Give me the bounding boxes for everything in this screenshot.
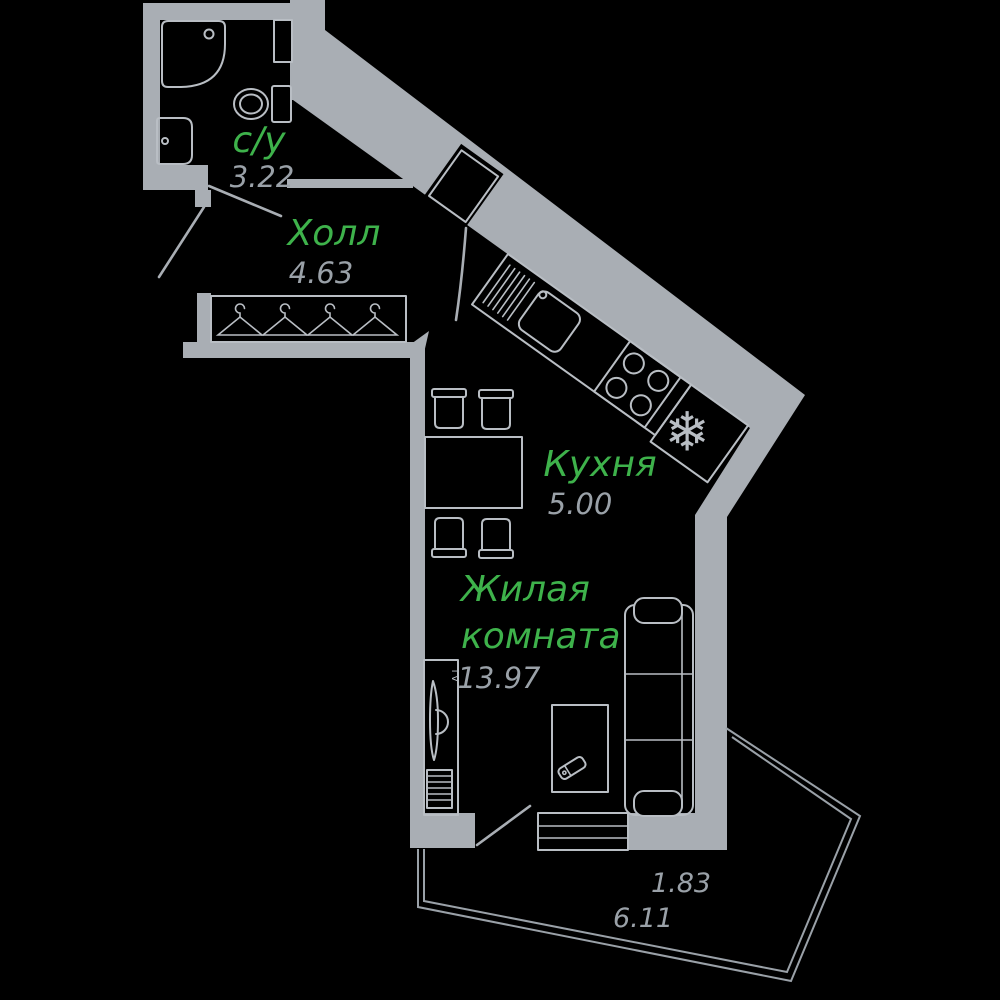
balcony-door-swing: [477, 806, 530, 845]
sofa-armrest: [634, 598, 682, 623]
wall-hall-bottom: [183, 342, 425, 358]
hanger-icon: [263, 304, 307, 335]
chair-icon: [432, 518, 466, 557]
window: [538, 813, 628, 850]
chair-icon: [479, 519, 513, 558]
chair-icon: [432, 389, 466, 428]
balcony: [418, 728, 860, 981]
radiator-icon: [427, 770, 452, 808]
sink-tap-icon: [162, 138, 168, 144]
sofa-armrest: [634, 791, 682, 816]
coffee-table: [552, 705, 608, 792]
wall-entry-stub: [195, 190, 211, 207]
toilet-tank-icon: [272, 86, 291, 122]
dining-table: [425, 437, 522, 508]
wall-bathroom-top: [143, 3, 292, 20]
dining-set: [425, 389, 522, 558]
room-area-living: 13.97: [457, 661, 541, 695]
room-name-bathroom: с/у: [232, 120, 286, 161]
room-area-kitchen: 5.00: [548, 487, 613, 521]
hangers: [218, 304, 397, 335]
snowflake-icon: ❄: [665, 401, 710, 464]
wall-diagonal-exterior: [290, 0, 805, 850]
tv-icon: [430, 681, 438, 760]
entrance-door-swing: [456, 228, 466, 320]
room-name-living-line2: комната: [461, 616, 621, 657]
room-name-living-line1: Жилая: [459, 569, 590, 610]
chair-icon: [479, 390, 513, 429]
room-area-bathroom: 3.22: [230, 160, 295, 194]
hanger-icon: [308, 304, 352, 335]
floorplan-page: ❄ TV: [0, 0, 1000, 1000]
toilet-bowl-inner: [240, 95, 262, 114]
duct-shaft-box: [274, 20, 292, 62]
hanger-icon: [218, 304, 262, 335]
floorplan-canvas: ❄ TV: [0, 0, 1000, 1000]
tv-unit: TV: [424, 660, 460, 815]
balcony-area-reduced: 1.83: [651, 868, 711, 899]
hanger-icon: [353, 304, 397, 335]
coffee-table-top: [552, 705, 608, 792]
shower-drain-icon: [205, 30, 214, 39]
wall-hall-thin: [287, 179, 413, 188]
wall-living-left: [410, 342, 425, 818]
wall-living-bottom-right: [628, 813, 727, 850]
hall-door-swing: [159, 207, 204, 277]
balcony-outline-inner: [424, 737, 851, 972]
balcony-area-full: 6.11: [613, 903, 673, 934]
room-area-hall: 4.63: [289, 256, 354, 290]
hall-wardrobe: [211, 296, 406, 342]
remote-icon: [557, 755, 587, 780]
wall-closet-stub: [197, 293, 211, 343]
window-frame: [538, 813, 628, 850]
shower-icon: [162, 21, 225, 87]
room-name-hall: Холл: [286, 213, 381, 254]
sofa: [625, 598, 693, 816]
wall-bathroom-bottom: [143, 165, 208, 190]
wall-living-bottom-left: [410, 813, 475, 848]
room-name-kitchen: Кухня: [543, 444, 656, 485]
